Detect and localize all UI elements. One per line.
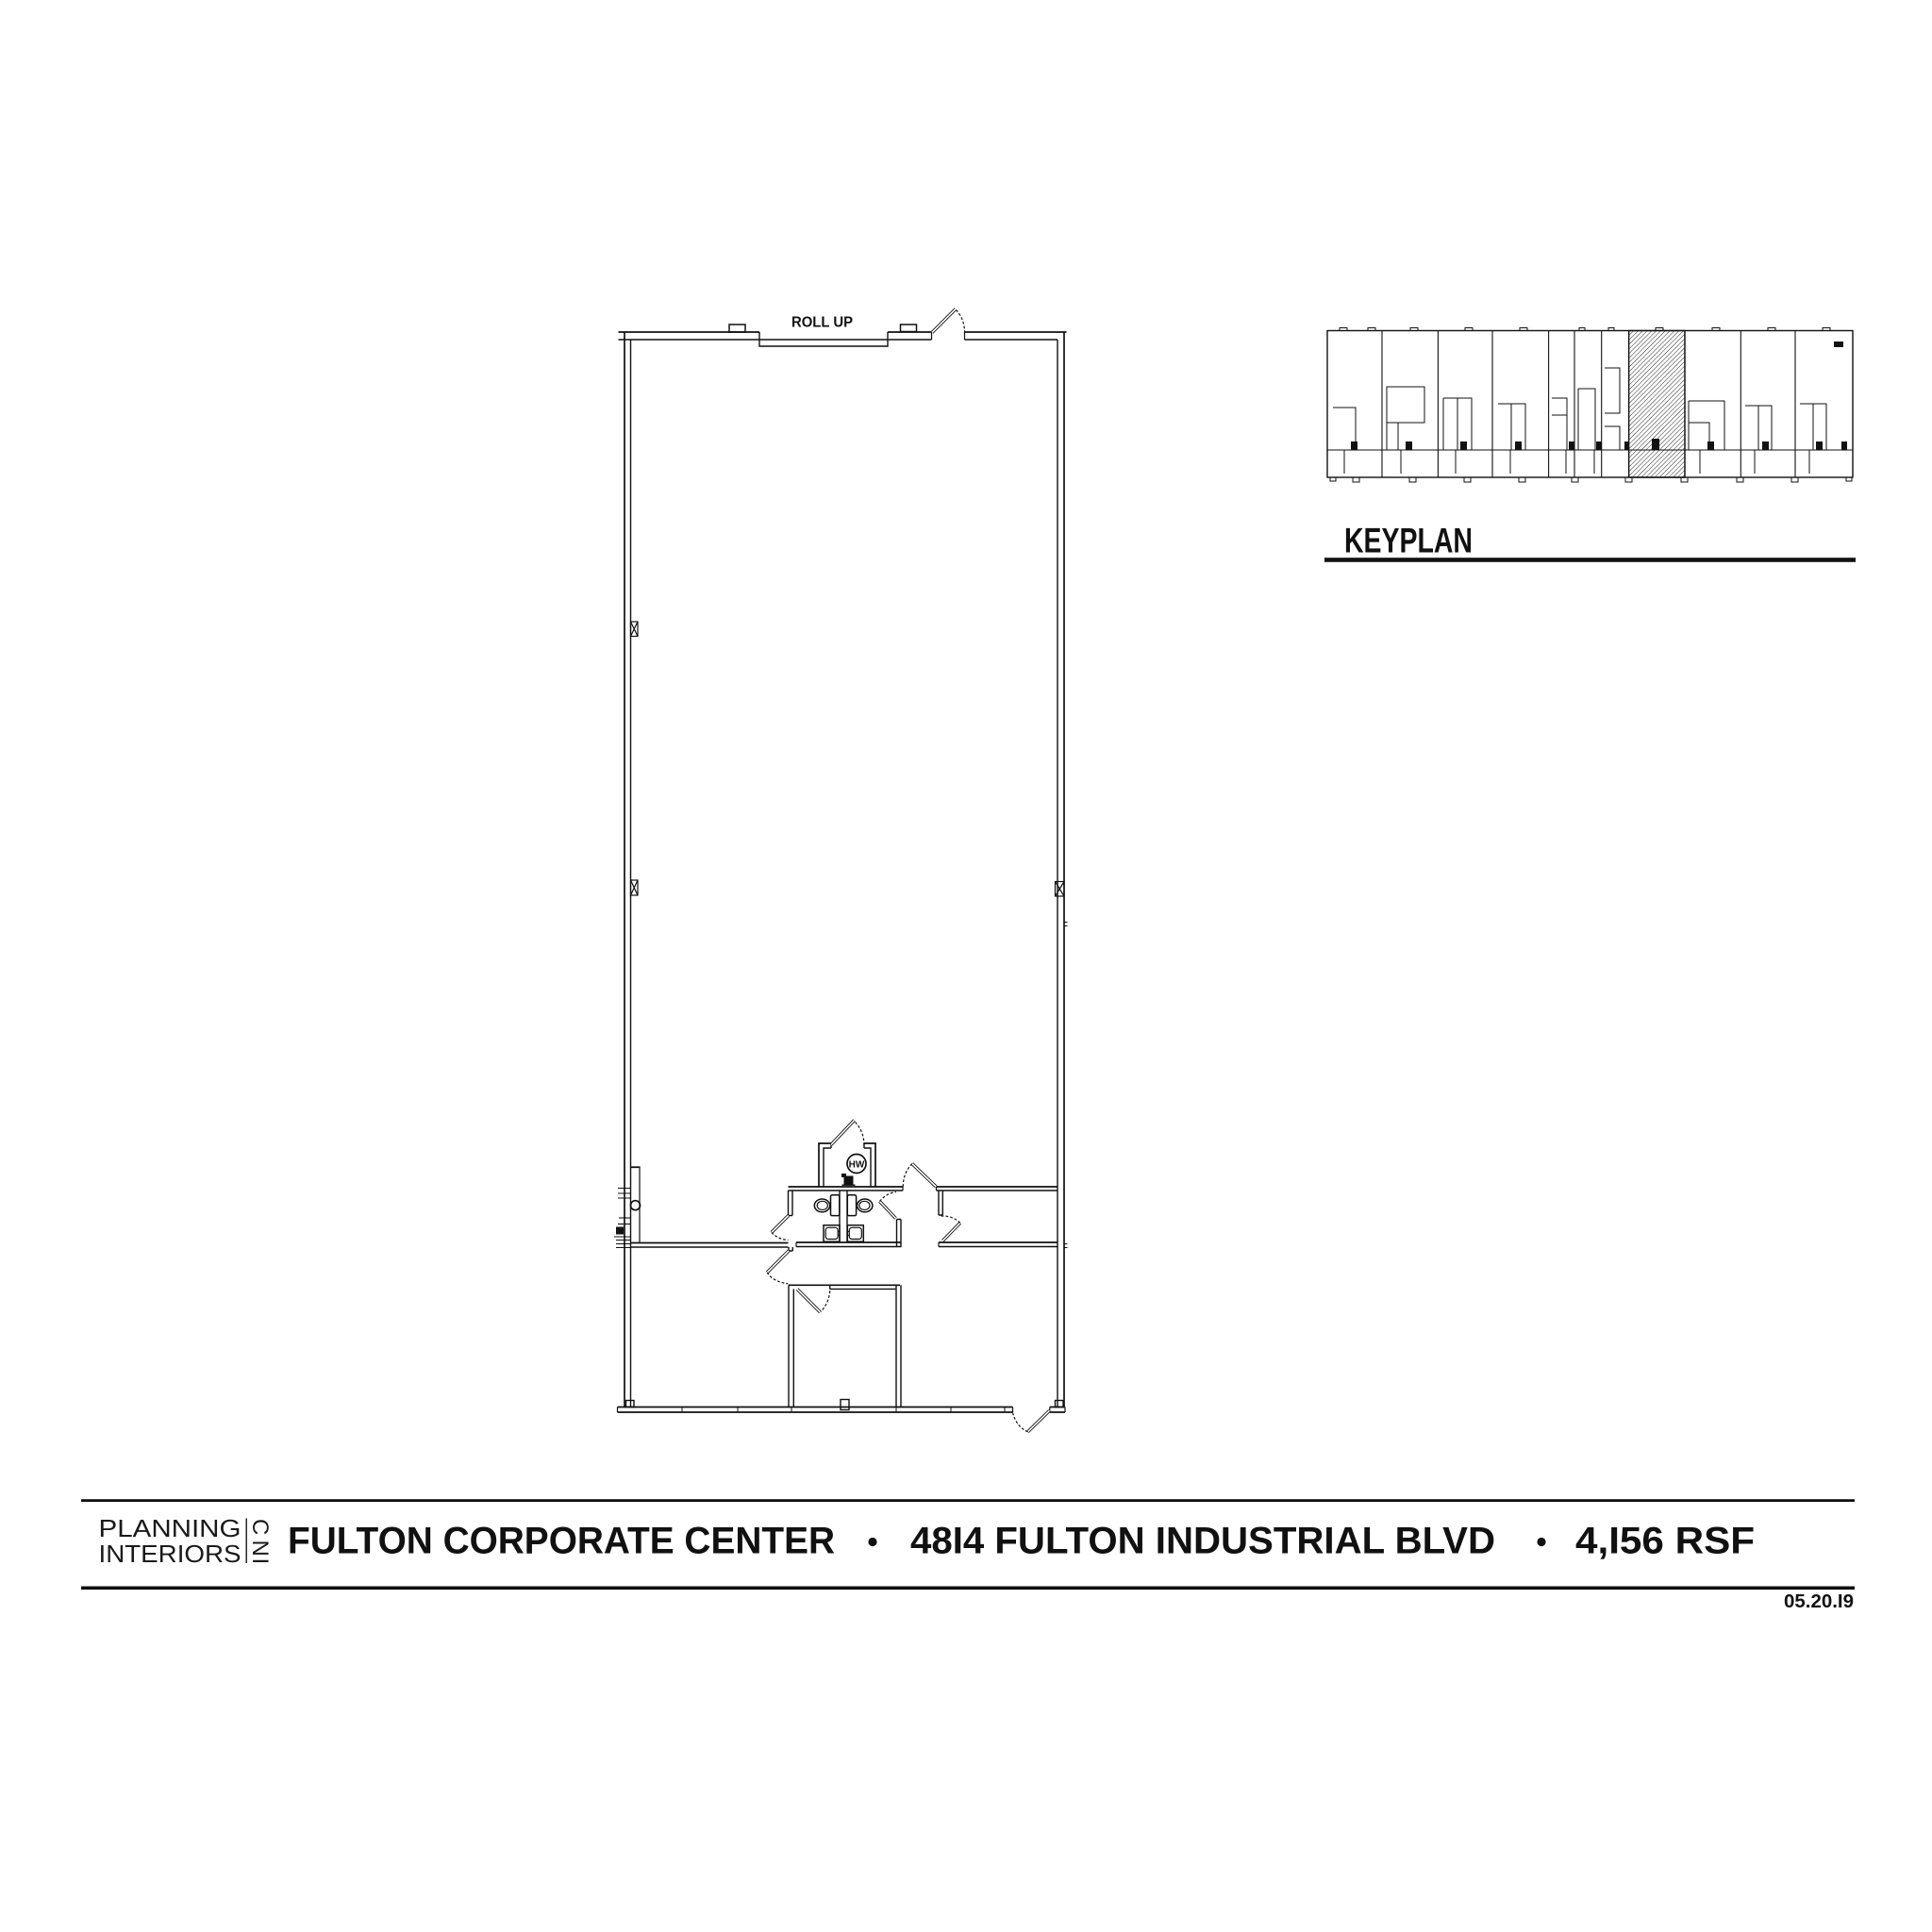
svg-text:48I4 FULTON INDUSTRIAL BLVD: 48I4 FULTON INDUSTRIAL BLVD — [910, 1521, 1495, 1562]
svg-text:HW: HW — [849, 1160, 865, 1171]
svg-text:4,I56 RSF: 4,I56 RSF — [1575, 1521, 1755, 1562]
svg-text:KEYPLAN: KEYPLAN — [1344, 522, 1473, 560]
svg-text:INTERIORS: INTERIORS — [99, 1541, 241, 1568]
svg-text:I: I — [247, 1558, 273, 1565]
svg-text:FULTON CORPORATE CENTER: FULTON CORPORATE CENTER — [288, 1521, 835, 1562]
svg-text:C: C — [247, 1519, 273, 1535]
svg-text:05.20.I9: 05.20.I9 — [1784, 1591, 1854, 1612]
svg-text:ROLL UP: ROLL UP — [791, 315, 853, 331]
svg-text:PLANNING: PLANNING — [99, 1516, 241, 1542]
svg-text:N: N — [247, 1541, 273, 1557]
